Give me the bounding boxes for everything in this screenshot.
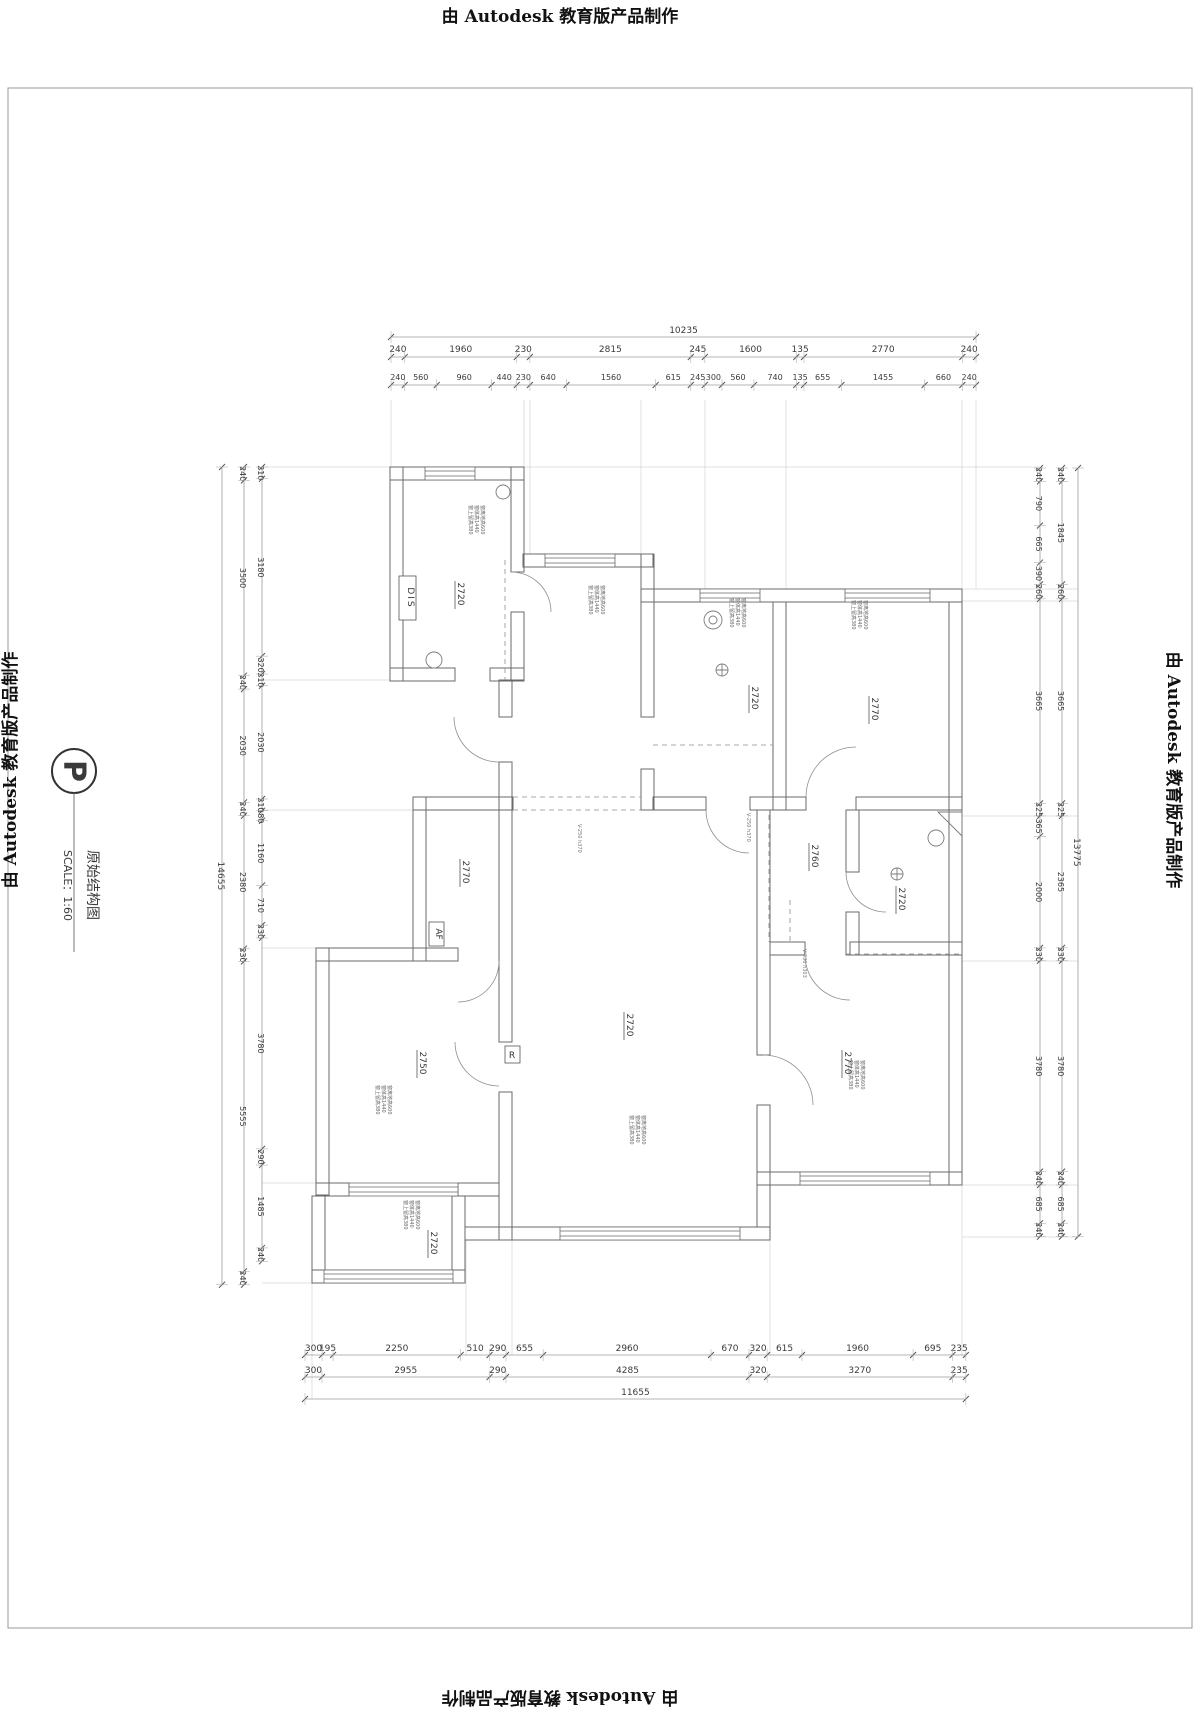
- dim-label: 195: [319, 1344, 336, 1354]
- dim-label: 135: [792, 345, 809, 355]
- svg-text:窗上留高380: 窗上留高380: [847, 1060, 854, 1090]
- watermark-top: 由 Autodesk 教育版产品制作: [442, 6, 679, 27]
- svg-text:窗上留高380: 窗上留高380: [850, 600, 857, 630]
- dim-label: 560: [730, 373, 745, 382]
- drawing-sheet: 由 Autodesk 教育版产品制作 由 Autodesk 教育版产品制作 由 …: [0, 0, 1200, 1709]
- dim-label: 640: [541, 373, 556, 382]
- dim-label: 710: [256, 898, 265, 913]
- dim-label: 670: [721, 1344, 738, 1354]
- drawing-title: 原始结构图: [84, 850, 100, 920]
- dim-chain-top-row2: 2405609604402306401560615245300560740135…: [388, 373, 979, 391]
- svg-text:窗上留高380: 窗上留高380: [374, 1085, 381, 1115]
- floor-plan-canvas: 由 Autodesk 教育版产品制作 由 Autodesk 教育版产品制作 由 …: [0, 0, 1200, 1709]
- dim-chain-left-outer: 2403500240203024023802305555240: [238, 464, 250, 1288]
- dim-label: 2770: [872, 345, 895, 355]
- dim-label: 790: [1034, 496, 1043, 511]
- opening-label: V-230 h303: [801, 949, 807, 978]
- dim-label: 1960: [449, 345, 472, 355]
- svg-text:DIS: DIS: [405, 587, 415, 608]
- title-block: P 原始结构图 SCALE：1:60: [52, 749, 100, 952]
- dim-label: 740: [767, 373, 782, 382]
- window-note: 窗离地高600 窗体高1440 窗上留高380: [402, 1200, 421, 1230]
- dis-label: DIS: [399, 576, 416, 620]
- dim-chain-right-inner: 2407906653902603665225365200023037802406…: [1034, 465, 1046, 1240]
- opening-label: V-250 h370: [745, 813, 751, 842]
- watermark-bottom: 由 Autodesk 教育版产品制作: [442, 1687, 679, 1708]
- dim-label: 2030: [256, 732, 265, 752]
- dim-label: 1600: [739, 345, 762, 355]
- svg-text:窗离地高600: 窗离地高600: [740, 598, 747, 628]
- basin-icon: [928, 830, 944, 846]
- svg-text:窗体高1440: 窗体高1440: [856, 600, 863, 628]
- elevation-value: 2770: [460, 861, 470, 884]
- dim-chain-bottom-row2: 300295529042853203270235: [302, 1366, 969, 1383]
- dim-label: 615: [776, 1344, 793, 1354]
- svg-text:窗上留高380: 窗上留高380: [587, 585, 594, 615]
- dim-chain-top-row1: 2401960230281524516001352770240: [388, 345, 979, 363]
- dim-label: 510: [467, 1344, 484, 1354]
- svg-text:窗离地高600: 窗离地高600: [862, 600, 869, 630]
- svg-text:R: R: [509, 1051, 515, 1061]
- svg-text:窗上留高380: 窗上留高380: [628, 1115, 635, 1145]
- dim-chain-right-outer: 2401845260366522523652303780240685240: [1056, 465, 1068, 1240]
- dim-label: 3665: [1056, 691, 1065, 711]
- dim-label: 135: [792, 373, 807, 382]
- dim-label: 1160: [256, 843, 265, 863]
- dim-label: 245: [690, 373, 705, 382]
- dim-label: 695: [924, 1344, 941, 1354]
- svg-text:窗离地高600: 窗离地高600: [859, 1060, 866, 1090]
- elevation-bath-right: 2720: [896, 886, 906, 914]
- dim-label: 300: [706, 373, 721, 382]
- elevation-bedroom-ne: 2770: [869, 696, 879, 724]
- dim-label: 245: [689, 345, 706, 355]
- dim-label: 685: [1056, 1197, 1065, 1212]
- af-label: AF: [429, 922, 444, 946]
- svg-text:窗体高1440: 窗体高1440: [380, 1085, 387, 1113]
- dim-label: 2380: [238, 872, 247, 892]
- dim-label: 240: [962, 373, 977, 382]
- elevation-value: 2720: [624, 1014, 634, 1037]
- title-symbol-letter: P: [57, 760, 92, 782]
- dim-label: 655: [815, 373, 830, 382]
- dim-label: 2030: [238, 736, 247, 756]
- ceiling-fixture-icon: [496, 485, 510, 499]
- dim-label: 14655: [215, 862, 225, 891]
- svg-text:窗体高1440: 窗体高1440: [408, 1200, 415, 1228]
- svg-text:窗离地高600: 窗离地高600: [386, 1085, 393, 1115]
- dim-label: 3180: [256, 557, 265, 577]
- floor-drain-icon: [891, 868, 903, 880]
- dim-label: 2955: [394, 1366, 417, 1376]
- dim-label: 320: [256, 657, 265, 672]
- dim-chain-top-overall: 10235: [388, 326, 979, 343]
- elevation-hall-mid: 2760: [809, 843, 819, 871]
- dim-label: 11655: [621, 1388, 650, 1398]
- window-note: 窗离地高600 窗体高1440 窗上留高380: [728, 598, 747, 628]
- r-label: R: [505, 1046, 520, 1063]
- dim-label: 1560: [601, 373, 621, 382]
- svg-text:窗上留高380: 窗上留高380: [467, 505, 474, 535]
- dim-label: 665: [1034, 536, 1043, 551]
- svg-text:窗上留高380: 窗上留高380: [402, 1200, 409, 1230]
- window-note: 窗离地高600 窗体高1440 窗上留高380: [847, 1060, 866, 1090]
- svg-text:窗离地高600: 窗离地高600: [599, 585, 606, 615]
- dim-label: 655: [516, 1344, 533, 1354]
- dim-chain-left-overall: 14655: [215, 464, 228, 1288]
- svg-text:窗体高1440: 窗体高1440: [593, 585, 600, 613]
- dim-label: 230: [516, 373, 531, 382]
- svg-text:窗离地高600: 窗离地高600: [414, 1200, 421, 1230]
- watermark-left: 由 Autodesk 教育版产品制作: [0, 652, 21, 889]
- dim-label: 960: [457, 373, 472, 382]
- dim-label: 13775: [1071, 838, 1081, 867]
- svg-text:窗离地高600: 窗离地高600: [640, 1115, 647, 1145]
- elevation-value: 2760: [809, 845, 819, 868]
- dim-label: 210: [256, 465, 265, 480]
- elevation-bedroom-west: 2770: [460, 859, 470, 887]
- dim-label: 3780: [1034, 1056, 1043, 1076]
- svg-text:窗离地高600: 窗离地高600: [479, 505, 486, 535]
- dim-label: 2365: [1056, 872, 1065, 892]
- watermark-right: 由 Autodesk 教育版产品制作: [1163, 652, 1184, 889]
- sheet-border: [8, 88, 1192, 1628]
- dim-label: 2960: [616, 1344, 639, 1354]
- svg-text:窗体高1440: 窗体高1440: [853, 1060, 860, 1088]
- basin-drain-icon: [709, 616, 717, 624]
- svg-text:窗体高1440: 窗体高1440: [634, 1115, 641, 1143]
- dim-label: 560: [413, 373, 428, 382]
- dim-label: 1485: [256, 1196, 265, 1216]
- floor-drain-icon: [716, 664, 728, 676]
- elevation-bath-top: 2720: [749, 685, 759, 713]
- dim-label: 10235: [669, 326, 698, 336]
- dim-chain-bottom-overall: 11655: [302, 1388, 969, 1405]
- dim-label: 1845: [1056, 523, 1065, 543]
- dim-label: 1455: [873, 373, 893, 382]
- dim-label: 3270: [848, 1366, 871, 1376]
- dim-label: 180: [256, 808, 265, 823]
- svg-text:窗体高1440: 窗体高1440: [734, 598, 741, 626]
- window-note: 窗离地高600 窗体高1440 窗上留高380: [628, 1115, 647, 1145]
- elevation-value: 2720: [896, 888, 906, 911]
- elevation-value: 2770: [869, 698, 879, 721]
- dim-chain-bottom-row1: 3001952250510290655296067032061519606952…: [302, 1344, 969, 1361]
- dim-label: 235: [951, 1344, 968, 1354]
- elevation-value: 2720: [455, 583, 465, 606]
- dim-label: 240: [390, 373, 405, 382]
- dim-label: 390: [1034, 566, 1043, 581]
- window-note: 窗离地高600 窗体高1440 窗上留高380: [467, 505, 486, 535]
- elevation-entry: 2720: [455, 581, 465, 609]
- dim-label: 240: [389, 345, 406, 355]
- dim-label: 230: [515, 345, 532, 355]
- elevation-bedroom-sw: 2750: [417, 1050, 427, 1078]
- dim-label: 1960: [846, 1344, 869, 1354]
- dim-label: 3665: [1034, 691, 1043, 711]
- dim-label: 3500: [238, 568, 247, 588]
- elevation-value: 2720: [749, 687, 759, 710]
- dim-label: 685: [1034, 1197, 1043, 1212]
- dim-label: 3780: [256, 1033, 265, 1053]
- dim-label: 290: [256, 1149, 265, 1164]
- dim-label: 2250: [385, 1344, 408, 1354]
- window-note: 窗离地高600 窗体高1440 窗上留高380: [374, 1085, 393, 1115]
- dim-label: 440: [497, 373, 512, 382]
- dim-label: 235: [951, 1366, 968, 1376]
- dim-label: 615: [666, 373, 681, 382]
- dim-label: 4285: [616, 1366, 639, 1376]
- ceiling-fixture-icon: [426, 652, 442, 668]
- dim-label: 5555: [238, 1106, 247, 1126]
- dim-label: 365: [1034, 818, 1043, 833]
- elevation-living: 2720: [624, 1012, 634, 1040]
- dim-label: 660: [936, 373, 951, 382]
- elevation-value: 2750: [417, 1052, 427, 1075]
- dim-label: 2815: [599, 345, 622, 355]
- drawing-scale: SCALE：1:60: [61, 850, 74, 921]
- svg-text:窗体高1440: 窗体高1440: [473, 505, 480, 533]
- dim-chain-left-inner: 2103180320210203021018011607102303780290…: [256, 464, 268, 1264]
- window-note: 窗离地高600 窗体高1440 窗上留高380: [850, 600, 869, 630]
- basin-icon: [704, 611, 722, 629]
- opening-label: V-250 h370: [576, 824, 582, 853]
- dim-label: 210: [256, 672, 265, 687]
- elevation-value: 2720: [428, 1232, 438, 1255]
- svg-text:窗上留高380: 窗上留高380: [728, 598, 735, 628]
- elevation-balcony: 2720: [428, 1230, 438, 1258]
- window-note: 窗离地高600 窗体高1440 窗上留高380: [587, 585, 606, 615]
- dim-label: 2000: [1034, 882, 1043, 902]
- dim-label: 3780: [1056, 1056, 1065, 1076]
- dim-label: 240: [961, 345, 978, 355]
- svg-text:AF: AF: [433, 928, 443, 939]
- dim-chain-right-overall: 13775: [1071, 465, 1084, 1240]
